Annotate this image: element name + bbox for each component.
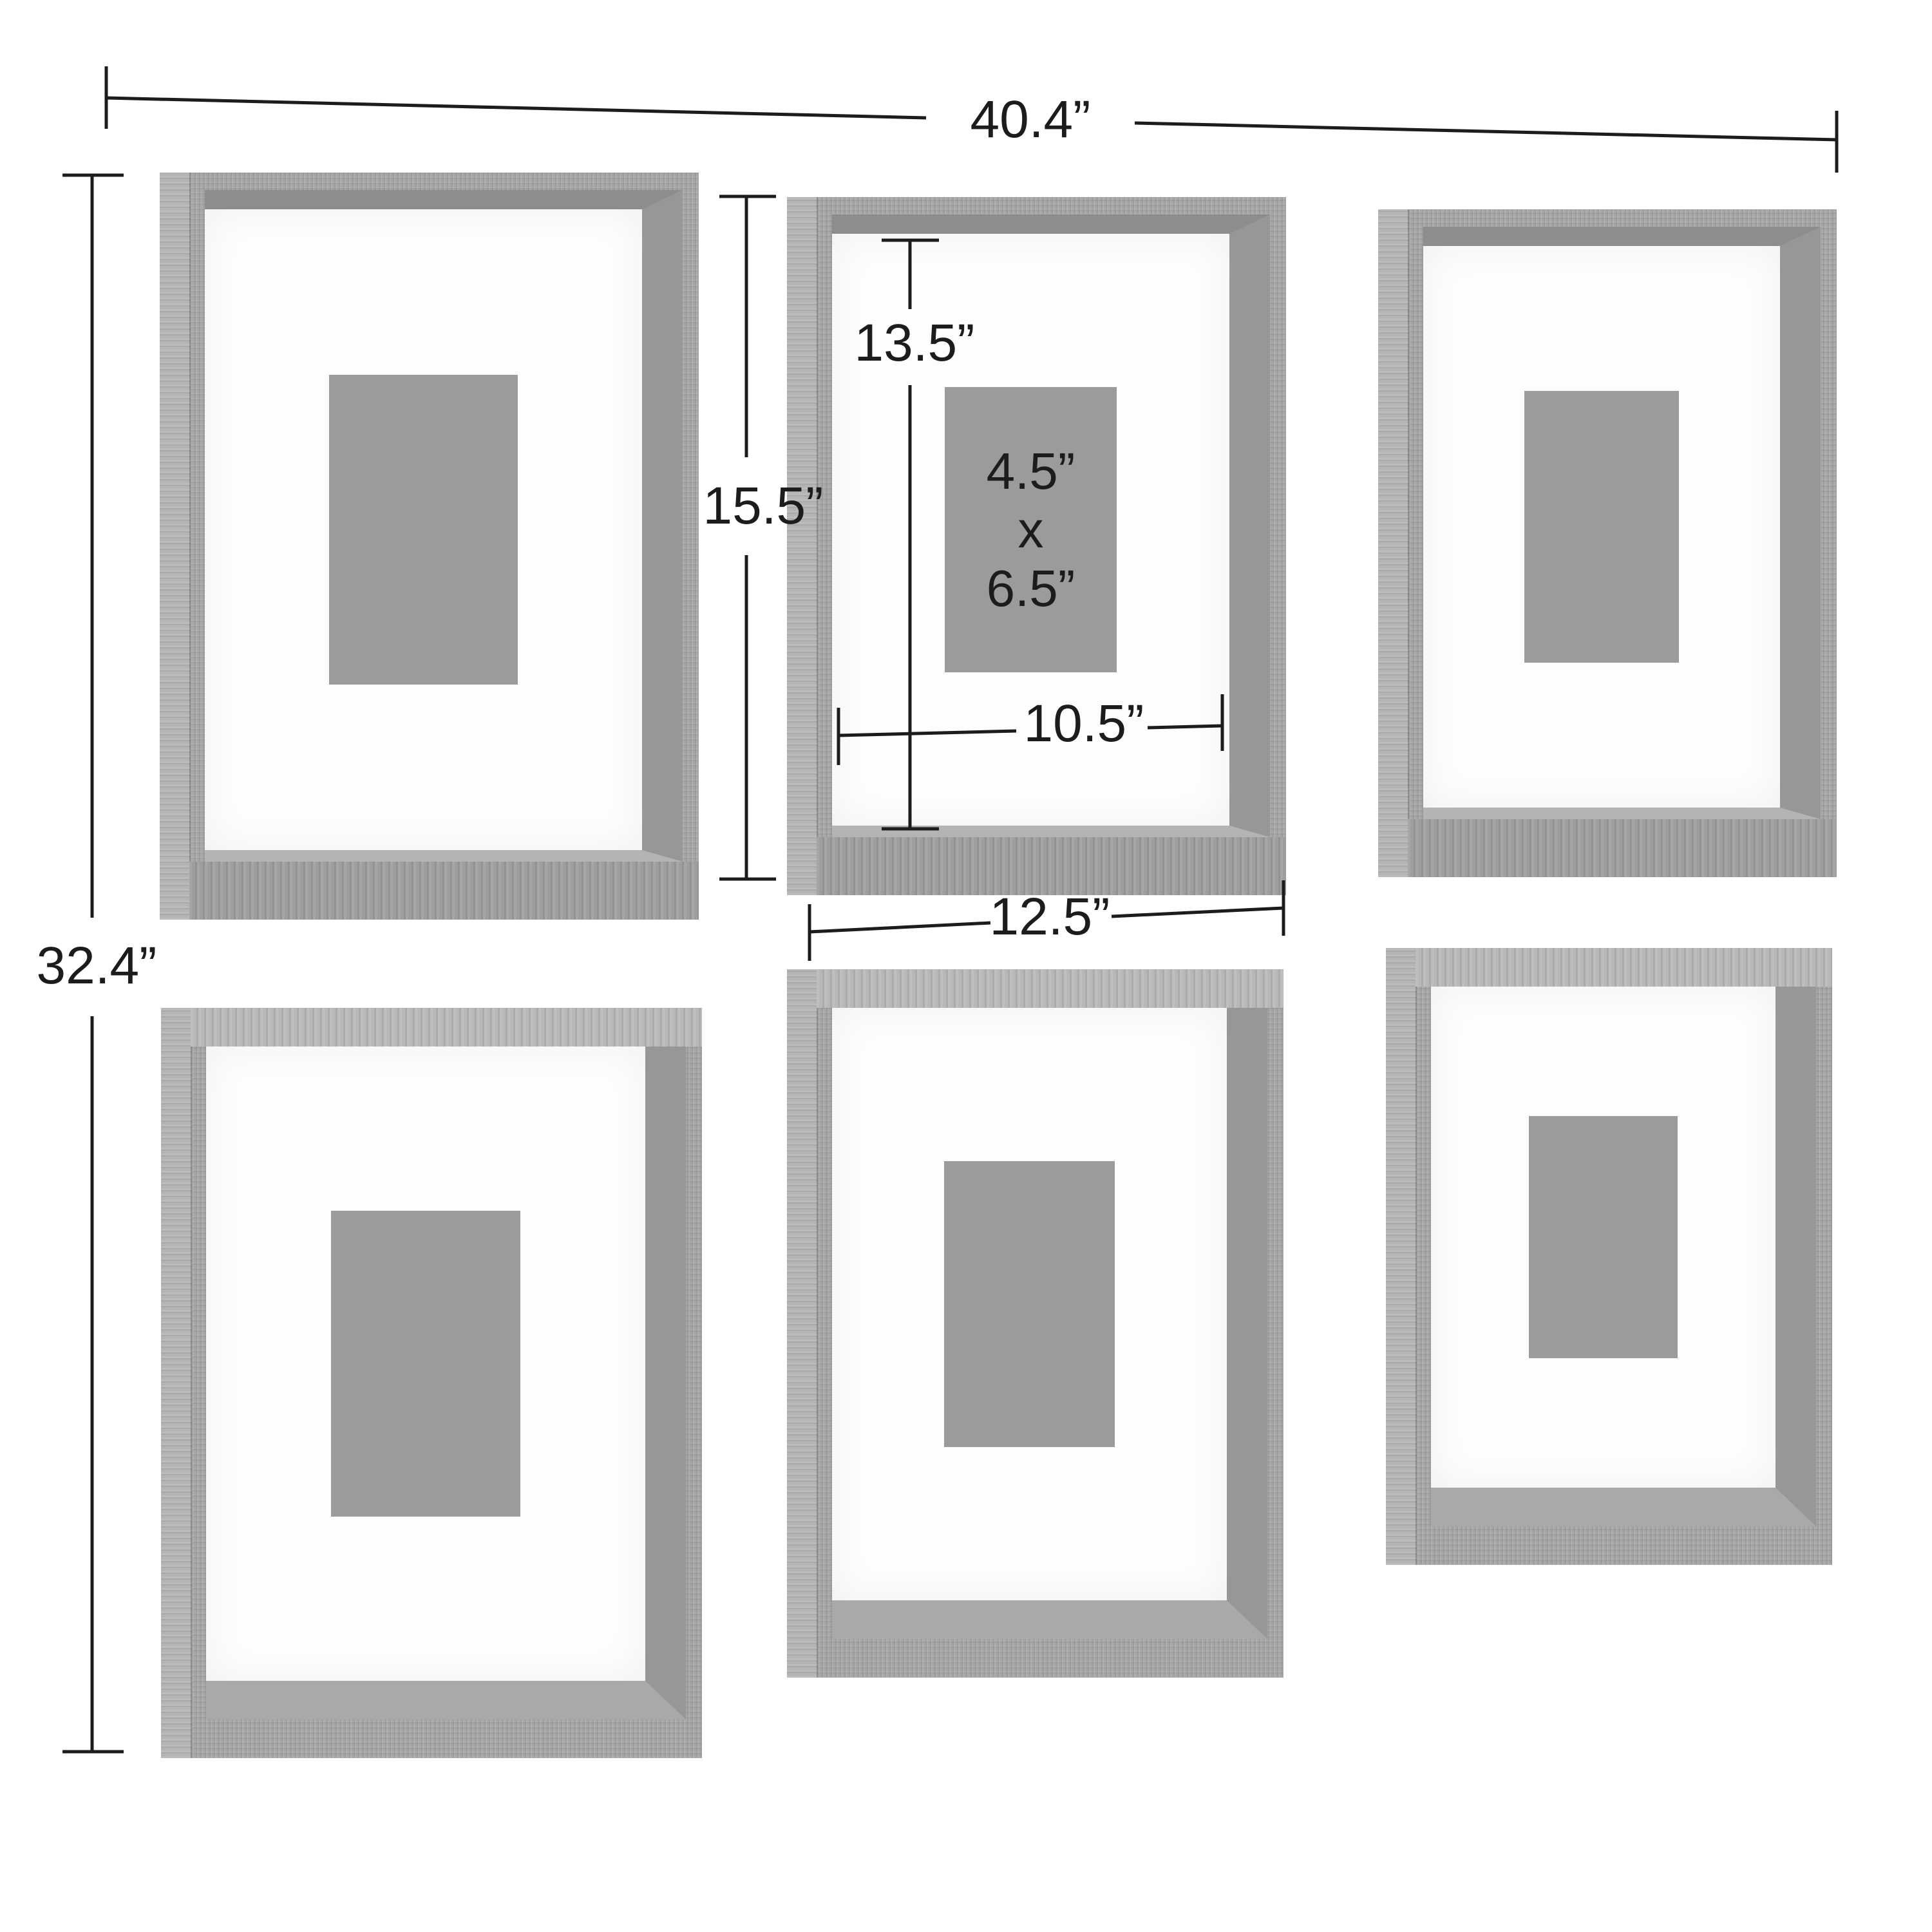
frame-bottom-rail bbox=[189, 862, 699, 920]
frame-top-rail bbox=[1416, 948, 1832, 987]
frame-mat bbox=[832, 1008, 1227, 1600]
photo-placeholder bbox=[944, 1161, 1115, 1447]
photo-placeholder bbox=[1529, 1116, 1678, 1358]
picture-frame-top-right bbox=[1378, 209, 1837, 877]
photo-size-width: 4.5” bbox=[987, 442, 1075, 500]
photo-placeholder bbox=[331, 1211, 521, 1517]
frame-bottom-rail bbox=[817, 837, 1286, 895]
frame-side-panel bbox=[161, 1008, 192, 1758]
picture-frame-top-middle: 4.5” x 6.5” bbox=[787, 197, 1286, 895]
picture-frame-bottom-left bbox=[161, 1008, 702, 1758]
frame-top-rail bbox=[817, 969, 1283, 1008]
frame-mat bbox=[1423, 246, 1780, 808]
dimension-label-overall-width: 40.4” bbox=[914, 93, 1146, 146]
photo-placeholder bbox=[329, 375, 518, 685]
frame-height-dimension-line bbox=[719, 196, 776, 879]
frame-side-panel bbox=[160, 173, 191, 920]
picture-frame-bottom-right bbox=[1386, 948, 1832, 1565]
frame-bottom-rail bbox=[1408, 819, 1837, 877]
photo-size-height: 6.5” bbox=[987, 559, 1075, 618]
frame-side-panel bbox=[787, 197, 818, 895]
dimension-label-frame-width: 12.5” bbox=[934, 891, 1166, 943]
frame-side-panel bbox=[1378, 209, 1409, 877]
frame-opening bbox=[206, 1046, 686, 1719]
dimension-label-overall-height: 32.4” bbox=[0, 940, 213, 992]
frame-opening bbox=[1431, 987, 1816, 1526]
photo-placeholder bbox=[1524, 391, 1678, 662]
frame-side-panel bbox=[1386, 948, 1417, 1565]
dimension-label-frame-height: 15.5” bbox=[647, 480, 879, 533]
picture-frame-top-left bbox=[160, 173, 699, 920]
dimension-label-opening-top-offset: 13.5” bbox=[799, 317, 1030, 370]
frame-mat bbox=[206, 1046, 645, 1681]
frame-opening bbox=[205, 190, 683, 862]
frame-mat bbox=[205, 209, 642, 850]
picture-frame-bottom-middle bbox=[787, 969, 1283, 1678]
frame-mat bbox=[1431, 987, 1776, 1488]
photo-placeholder-with-size: 4.5” x 6.5” bbox=[945, 387, 1117, 673]
frame-side-panel bbox=[787, 969, 818, 1678]
photo-size-x: x bbox=[1018, 500, 1044, 559]
product-dimension-diagram: 4.5” x 6.5” bbox=[0, 0, 1932, 1932]
frame-opening bbox=[832, 1008, 1267, 1639]
frame-top-rail bbox=[191, 1008, 702, 1046]
dimension-label-mat-opening-width: 10.5” bbox=[968, 697, 1200, 750]
frame-opening bbox=[1423, 227, 1821, 819]
